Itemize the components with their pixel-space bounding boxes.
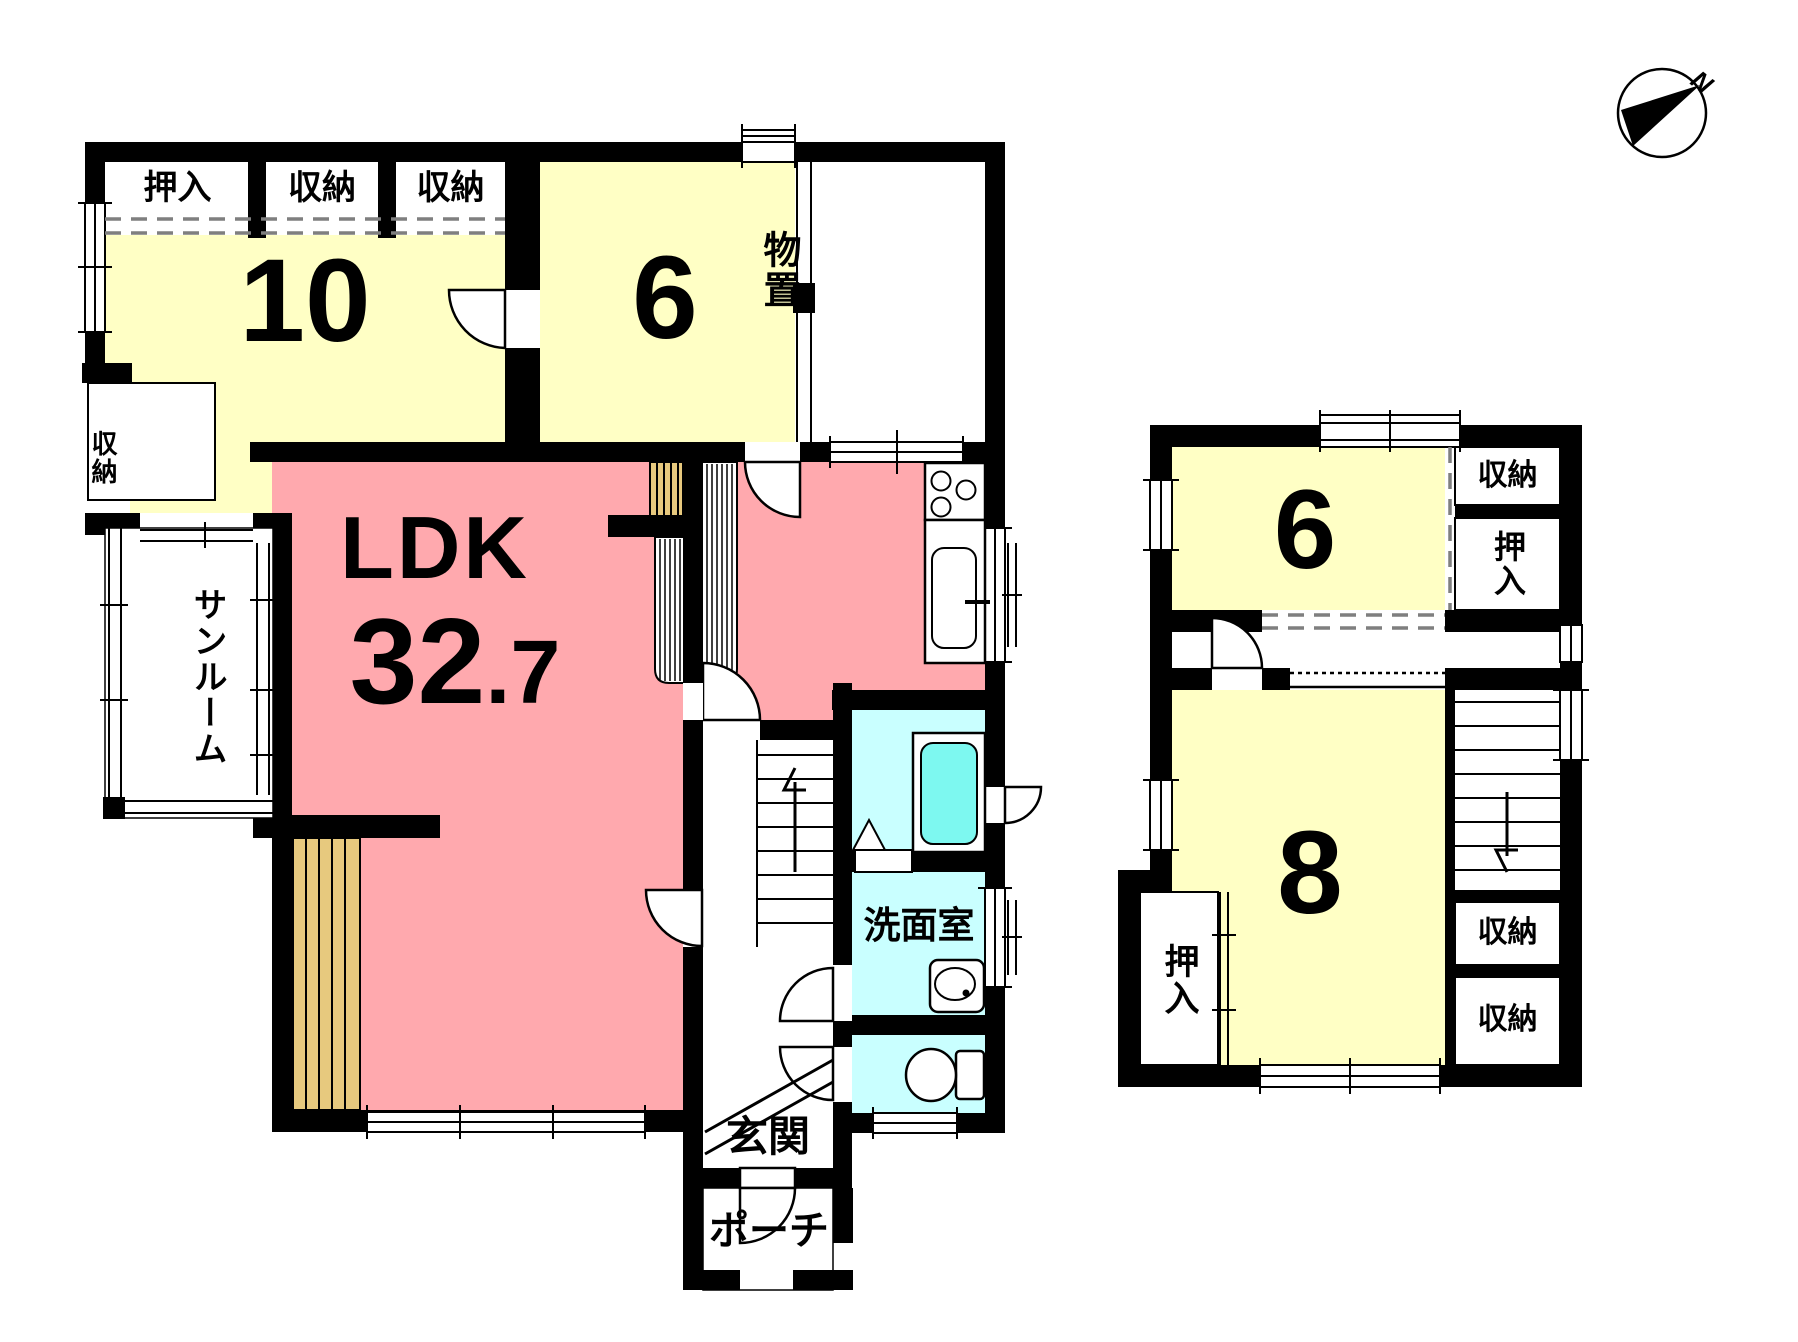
ldk-area-int: 32 bbox=[350, 600, 486, 722]
floor-plan: 押入 収納 収納 収納 10 6 物置 サンルーム LDK 32.7 洗面室 玄… bbox=[0, 0, 1798, 1342]
label-monooki: 物置 bbox=[755, 212, 801, 327]
label-shuno-2f-mid: 収納 bbox=[1455, 913, 1560, 953]
stairs-1f bbox=[757, 740, 833, 947]
room8-sliding-door bbox=[1290, 668, 1445, 690]
room10-door-gap bbox=[505, 290, 540, 348]
label-oshiire-1f: 押入 bbox=[105, 165, 250, 210]
washing-machine-pan bbox=[855, 850, 912, 872]
label-oshiire-2f-left: 押入 bbox=[1156, 915, 1202, 1045]
kitchen-sink bbox=[932, 548, 976, 648]
toilet-bowl bbox=[906, 1049, 956, 1101]
front-door-leaf bbox=[740, 1168, 795, 1188]
label-room10-size: 10 bbox=[200, 228, 410, 373]
ldk-area-dec: .7 bbox=[485, 628, 560, 718]
label-oshiire-2f-right: 押入 bbox=[1486, 520, 1530, 608]
bathtub bbox=[921, 743, 977, 844]
label-room6-1f-size: 6 bbox=[540, 225, 790, 370]
label-porch: ポーチ bbox=[703, 1208, 835, 1254]
label-room8-size: 8 bbox=[1240, 798, 1380, 948]
label-genkan: 玄関 bbox=[712, 1112, 824, 1162]
label-shuno-west: 収納 bbox=[84, 408, 122, 508]
ldk-hall-opening bbox=[683, 683, 703, 720]
label-washroom: 洗面室 bbox=[848, 902, 990, 948]
label-ldk: LDK bbox=[310, 498, 560, 598]
label-shuno-2f-top: 収納 bbox=[1455, 456, 1560, 496]
label-shuno-2f-bot: 収納 bbox=[1455, 1000, 1560, 1040]
label-room6-2f-size: 6 bbox=[1230, 460, 1380, 600]
back-door bbox=[1005, 787, 1041, 823]
toilet-tank bbox=[956, 1051, 984, 1099]
label-shuno-1f-a: 収納 bbox=[266, 165, 378, 210]
label-shuno-1f-b: 収納 bbox=[396, 165, 505, 210]
engawa-strip bbox=[293, 838, 360, 1110]
stairs-2f bbox=[1455, 702, 1560, 872]
label-ldk-area: 32.7 bbox=[320, 600, 590, 740]
washroom-door bbox=[780, 968, 833, 1021]
label-sunroom: サンルーム bbox=[183, 572, 231, 782]
